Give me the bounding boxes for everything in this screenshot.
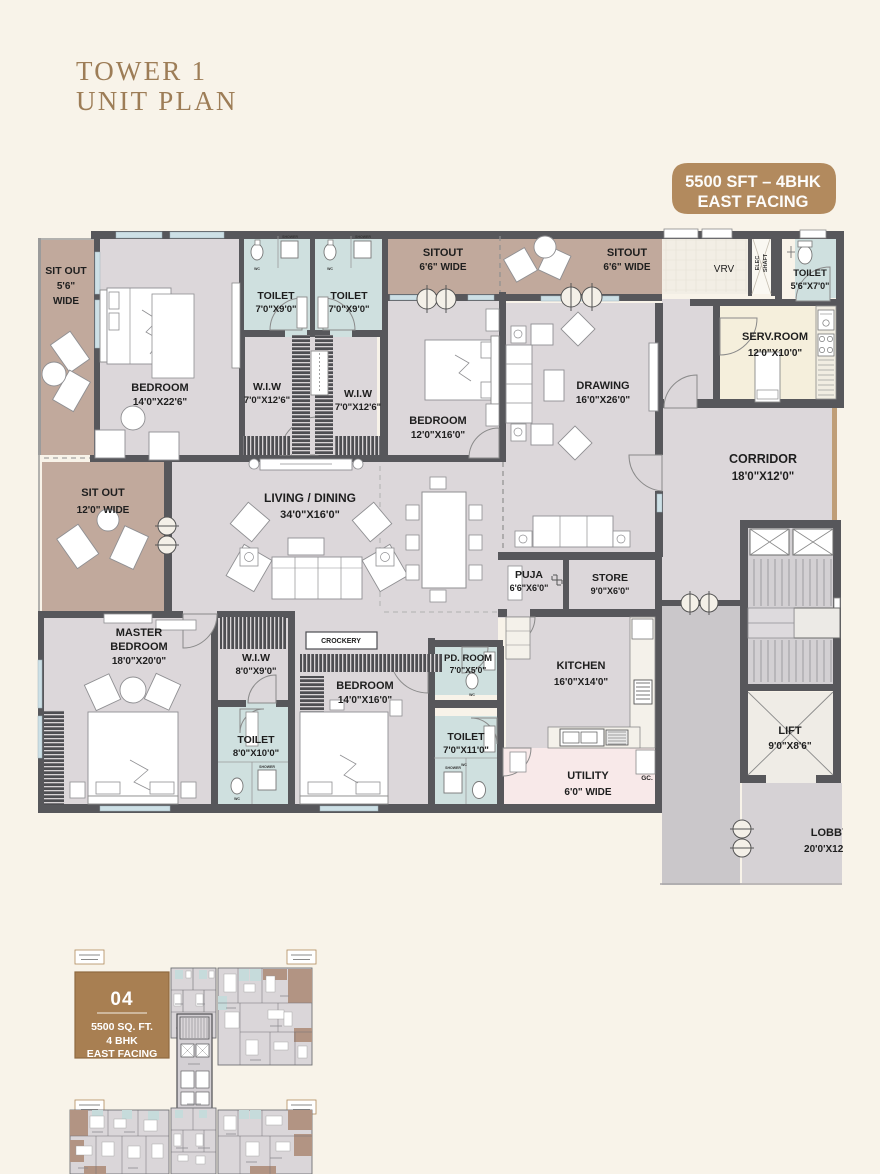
svg-text:7'0"X11'0": 7'0"X11'0" [443,745,489,756]
svg-text:SHOWER: SHOWER [355,235,371,239]
svg-text:4 BHK: 4 BHK [106,1035,138,1047]
svg-text:7'0"X12'6": 7'0"X12'6" [244,395,290,406]
svg-text:8'0"X10'0": 8'0"X10'0" [233,748,279,759]
svg-text:SIT OUT: SIT OUT [81,487,125,499]
svg-text:5500 SFT – 4BHK: 5500 SFT – 4BHK [685,173,821,191]
svg-text:14'0"X16'0": 14'0"X16'0" [338,695,393,706]
svg-text:7'0"X9'0": 7'0"X9'0" [329,304,370,315]
svg-text:16'0"X26'0": 16'0"X26'0" [576,395,631,406]
svg-text:SHAFT: SHAFT [763,253,769,272]
svg-text:DRAWING: DRAWING [576,380,629,392]
svg-text:7'0"X12'6": 7'0"X12'6" [335,402,381,413]
svg-text:SHOWER: SHOWER [445,766,461,770]
svg-text:14'0"X22'6": 14'0"X22'6" [133,397,188,408]
svg-text:5'6"X7'0": 5'6"X7'0" [791,281,830,291]
svg-text:5500 SQ. FT.: 5500 SQ. FT. [91,1021,153,1033]
svg-text:TOILET: TOILET [237,734,275,746]
svg-text:LIVING / DINING: LIVING / DINING [264,491,356,505]
svg-text:WIDE: WIDE [53,296,79,307]
svg-text:18'0"X12'0": 18'0"X12'0" [732,471,794,483]
svg-text:WC: WC [327,267,333,271]
svg-text:7'0"X9'0": 7'0"X9'0" [256,304,297,315]
svg-text:W.I.W: W.I.W [253,381,281,393]
svg-text:16'0"X14'0": 16'0"X14'0" [554,677,609,688]
svg-text:8'0"X9'0": 8'0"X9'0" [236,666,277,677]
svg-text:BEDROOM: BEDROOM [336,680,393,692]
svg-text:WC: WC [254,267,260,271]
svg-text:PUJA: PUJA [515,569,543,581]
svg-text:34'0"X16'0": 34'0"X16'0" [280,509,340,521]
svg-text:9'0"X6'0": 9'0"X6'0" [591,586,630,596]
svg-text:W.I.W: W.I.W [242,652,270,664]
svg-text:UNIT PLAN: UNIT PLAN [76,86,238,116]
svg-text:6'0" WIDE: 6'0" WIDE [564,787,611,798]
svg-text:SERV.ROOM: SERV.ROOM [742,331,808,343]
svg-text:CORRIDOR: CORRIDOR [729,452,797,466]
svg-text:18'0"X20'0": 18'0"X20'0" [112,656,167,667]
svg-text:VRV: VRV [714,264,735,275]
svg-text:7'0"X5'0": 7'0"X5'0" [450,665,487,675]
svg-text:BEDROOM: BEDROOM [409,415,466,427]
svg-text:SHOWER: SHOWER [282,235,298,239]
svg-text:EAST FACING: EAST FACING [698,193,809,211]
svg-text:5'6": 5'6" [57,281,76,292]
svg-text:GC.: GC. [641,775,653,782]
svg-text:WC: WC [461,763,467,767]
svg-text:6'6" WIDE: 6'6" WIDE [603,262,650,273]
svg-text:KITCHEN: KITCHEN [557,660,606,672]
svg-text:CROCKERY: CROCKERY [321,638,361,645]
svg-text:TOILET: TOILET [447,731,485,743]
svg-text:BEDROOM: BEDROOM [110,641,167,653]
svg-text:TOWER 1: TOWER 1 [76,56,207,86]
svg-text:04: 04 [110,989,133,1010]
svg-text:SITOUT: SITOUT [607,247,647,259]
svg-text:BEDROOM: BEDROOM [131,382,188,394]
svg-text:12'0"X16'0": 12'0"X16'0" [411,430,466,441]
svg-text:9'0"X8'6": 9'0"X8'6" [768,741,811,752]
svg-text:6'6"X6'0": 6'6"X6'0" [510,583,549,593]
svg-text:STORE: STORE [592,572,628,584]
svg-text:ELEC: ELEC [755,256,761,271]
svg-text:UTILITY: UTILITY [567,770,609,782]
svg-text:SIT OUT: SIT OUT [45,265,87,277]
svg-text:W.I.W: W.I.W [344,388,372,400]
svg-text:PD. ROOM: PD. ROOM [444,653,492,664]
svg-text:SITOUT: SITOUT [423,247,463,259]
svg-text:TOILET: TOILET [257,290,295,302]
svg-text:WC: WC [469,693,475,697]
svg-text:EAST FACING: EAST FACING [87,1048,158,1060]
svg-text:LIFT: LIFT [778,725,801,737]
svg-text:SHOWER: SHOWER [259,765,275,769]
svg-text:6'6" WIDE: 6'6" WIDE [419,262,466,273]
svg-text:12'0" WIDE: 12'0" WIDE [77,505,130,516]
svg-text:WC: WC [234,797,240,801]
svg-text:12'0"X10'0": 12'0"X10'0" [748,348,803,359]
svg-text:MASTER: MASTER [116,627,163,639]
svg-text:TOILET: TOILET [793,268,827,279]
svg-text:TOILET: TOILET [330,290,368,302]
